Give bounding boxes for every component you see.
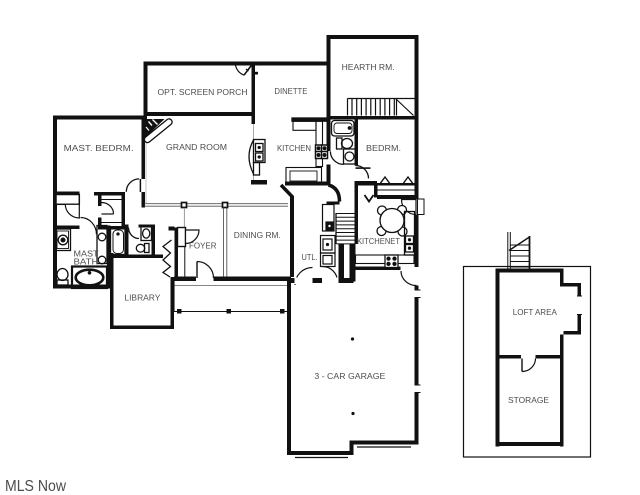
svg-text:LOFT AREA: LOFT AREA: [513, 308, 558, 317]
svg-text:BEDRM.: BEDRM.: [366, 144, 401, 153]
svg-text:3 - CAR GARAGE: 3 - CAR GARAGE: [314, 372, 385, 381]
svg-text:BATH: BATH: [74, 258, 99, 267]
svg-text:DINETTE: DINETTE: [274, 87, 307, 96]
svg-text:DINING RM.: DINING RM.: [234, 231, 281, 240]
svg-text:KITCHEN: KITCHEN: [277, 144, 311, 153]
svg-text:GRAND ROOM: GRAND ROOM: [166, 143, 227, 152]
svg-text:UTL.: UTL.: [302, 253, 318, 262]
svg-text:HEARTH RM.: HEARTH RM.: [342, 63, 395, 72]
svg-text:OPT. SCREEN PORCH: OPT. SCREEN PORCH: [158, 88, 248, 97]
svg-text:KITCHENET: KITCHENET: [357, 237, 400, 246]
svg-text:STORAGE: STORAGE: [508, 396, 549, 405]
svg-text:LIBRARY: LIBRARY: [124, 294, 161, 303]
svg-text:FOYER: FOYER: [189, 242, 217, 251]
svg-text:MAST. BEDRM.: MAST. BEDRM.: [64, 144, 134, 153]
svg-text:MLS Now: MLS Now: [5, 478, 67, 495]
